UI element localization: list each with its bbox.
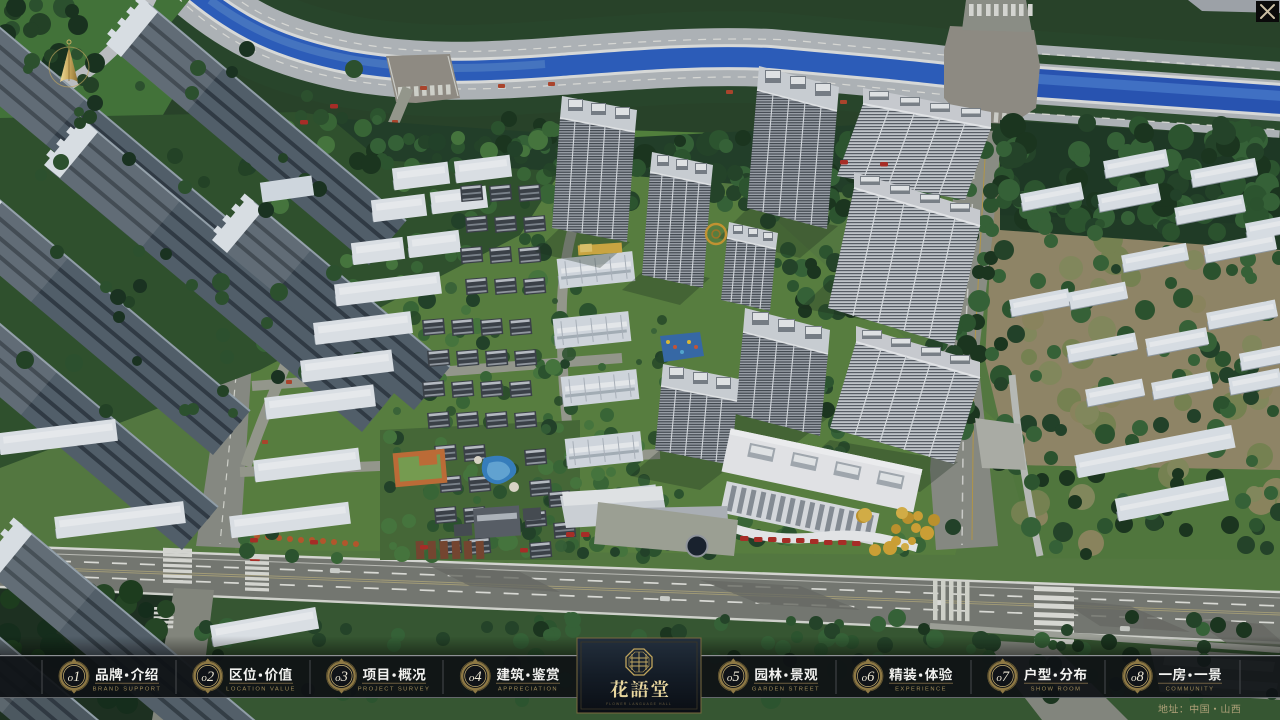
- svg-text:o2: o2: [201, 669, 214, 685]
- svg-text:o5: o5: [727, 669, 740, 685]
- svg-text:o1: o1: [68, 669, 81, 685]
- svg-text:APPRECIATION: APPRECIATION: [498, 687, 558, 693]
- svg-text:COMMUNITY: COMMUNITY: [1166, 687, 1215, 693]
- svg-text:EXPERIENCE: EXPERIENCE: [895, 687, 947, 693]
- svg-text:o3: o3: [335, 669, 348, 685]
- svg-text:PROJECT SURVEY: PROJECT SURVEY: [358, 687, 431, 693]
- svg-text:BRAND SUPPORT: BRAND SUPPORT: [93, 687, 162, 693]
- svg-text:SHOW ROOM: SHOW ROOM: [1031, 687, 1082, 693]
- svg-text:FLOWER LANGUAGE HALL: FLOWER LANGUAGE HALL: [606, 702, 672, 706]
- svg-text:GARDEN STREET: GARDEN STREET: [752, 687, 820, 693]
- svg-text:o8: o8: [1131, 669, 1145, 685]
- svg-text:o7: o7: [996, 669, 1010, 685]
- svg-text:o4: o4: [469, 669, 482, 685]
- svg-text:LOCATION VALUE: LOCATION VALUE: [226, 687, 296, 693]
- svg-text:o6: o6: [862, 669, 876, 685]
